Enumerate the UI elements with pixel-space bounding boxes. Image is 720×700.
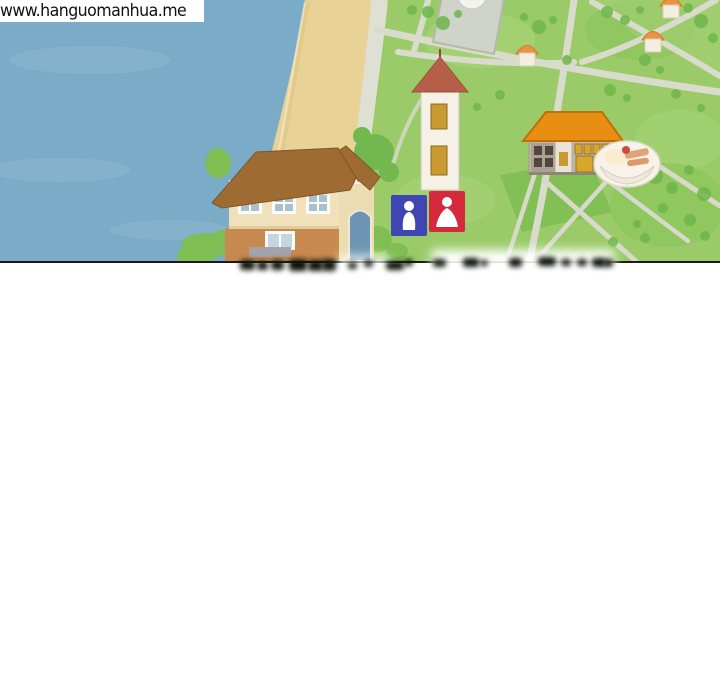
food-bowl-icon	[594, 141, 660, 187]
blank-area	[0, 263, 720, 700]
white-blur-patch	[432, 250, 614, 268]
map-panel	[0, 0, 720, 263]
watermark-text: www.hanguomanhua.me	[0, 0, 186, 22]
comic-page: www.hanguomanhua.me	[0, 0, 720, 700]
white-blur-patch	[338, 256, 390, 267]
watermark: www.hanguomanhua.me	[0, 0, 204, 22]
